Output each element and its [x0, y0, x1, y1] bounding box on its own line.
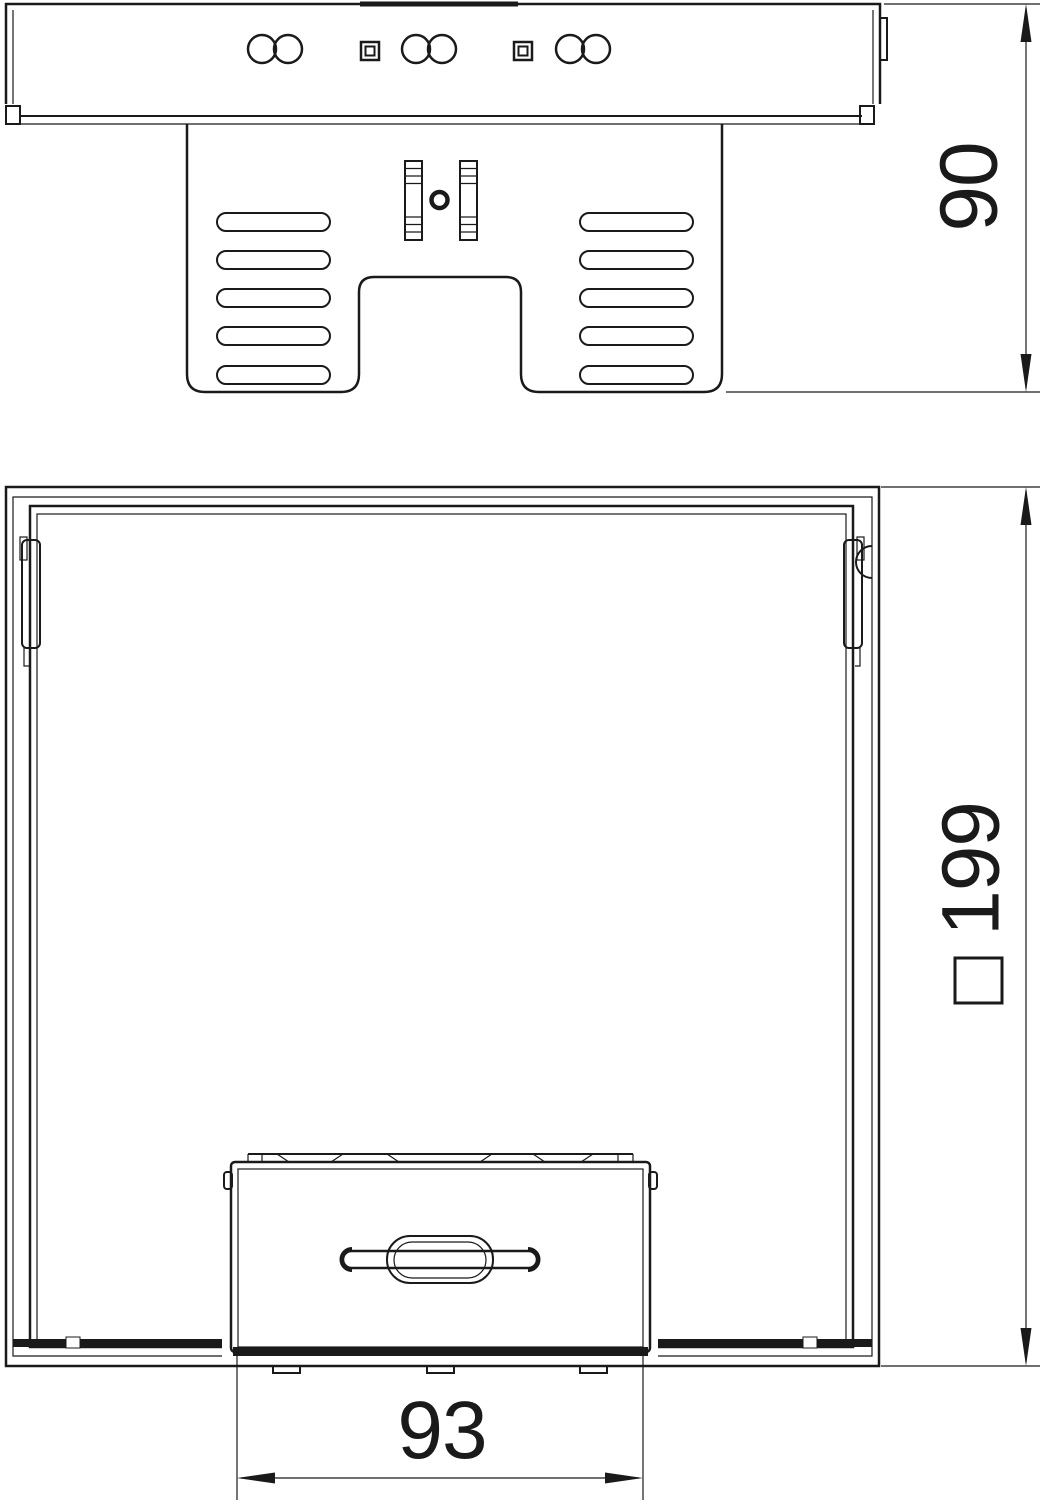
- round-hole: [402, 35, 430, 63]
- hole-pair-right: [556, 35, 610, 63]
- round-hole: [274, 35, 302, 63]
- drawer-bottom-thick-edge: [233, 1347, 648, 1356]
- side-view: [6, 2, 887, 393]
- arrowhead-up: [1021, 487, 1032, 525]
- hole-pair-left: [248, 35, 302, 63]
- dimension-value-90: 90: [924, 142, 1015, 231]
- vent-slot: [580, 366, 693, 384]
- square-hole-outer: [361, 42, 379, 60]
- dimension-199: 199: [881, 487, 1040, 1366]
- latch-right-step: [855, 648, 860, 666]
- vent-slot: [217, 213, 330, 231]
- arrowhead-down: [1021, 354, 1032, 392]
- ventilation-slots-right: [580, 213, 693, 384]
- clamp-bar-left: [405, 161, 422, 240]
- square-hole-outer: [514, 42, 532, 60]
- ventilation-slots-left: [217, 213, 330, 384]
- vent-slot: [580, 289, 693, 307]
- square-hole-left: [361, 42, 379, 60]
- clamp-bar-right-hatch: [460, 169, 477, 233]
- drawer-backing: [222, 1148, 658, 1360]
- mounting-plate-outline: [6, 4, 880, 104]
- hole-pair-center: [402, 35, 456, 63]
- dimension-value-199: 199: [926, 802, 1017, 936]
- dimension-90: 90: [726, 4, 1040, 392]
- arrowhead-left: [237, 1473, 275, 1484]
- square-hole-inner: [366, 47, 375, 56]
- round-hole: [556, 35, 584, 63]
- square-hole-inner: [519, 47, 528, 56]
- vent-slot: [217, 289, 330, 307]
- arrowhead-right: [605, 1473, 643, 1484]
- plate-top-thick-edge: [360, 2, 518, 7]
- latch-right: [844, 537, 872, 666]
- vent-slot: [217, 366, 330, 384]
- latch-left-step: [24, 648, 29, 666]
- center-clamp: [405, 161, 477, 240]
- clamp-bar-right: [460, 161, 477, 240]
- technical-drawing-canvas: 90: [0, 0, 1047, 1500]
- frame-bottom-notch-right: [803, 1337, 817, 1348]
- dimension-value-93: 93: [397, 1385, 486, 1476]
- square-symbol: [955, 958, 1002, 1003]
- round-hole: [428, 35, 456, 63]
- vent-slot: [580, 327, 693, 345]
- square-hole-right: [514, 42, 532, 60]
- round-hole: [582, 35, 610, 63]
- dimension-93: 93: [237, 1352, 643, 1500]
- round-hole: [248, 35, 276, 63]
- arrowhead-down: [1021, 1328, 1032, 1366]
- plan-view: [6, 487, 879, 1373]
- vent-slot: [580, 251, 693, 269]
- vent-slot: [217, 327, 330, 345]
- vent-slot: [580, 213, 693, 231]
- frame-bottom-notch-left: [66, 1337, 80, 1348]
- arrowhead-up: [1021, 4, 1032, 42]
- clamp-screw-hole: [432, 192, 448, 208]
- plate-foot-left: [6, 106, 20, 124]
- cassette-drawer: [222, 1148, 658, 1360]
- bracket-outline: [187, 124, 722, 392]
- plate-foot-right: [860, 106, 874, 124]
- vent-slot: [217, 251, 330, 269]
- clamp-bar-left-hatch: [405, 169, 422, 233]
